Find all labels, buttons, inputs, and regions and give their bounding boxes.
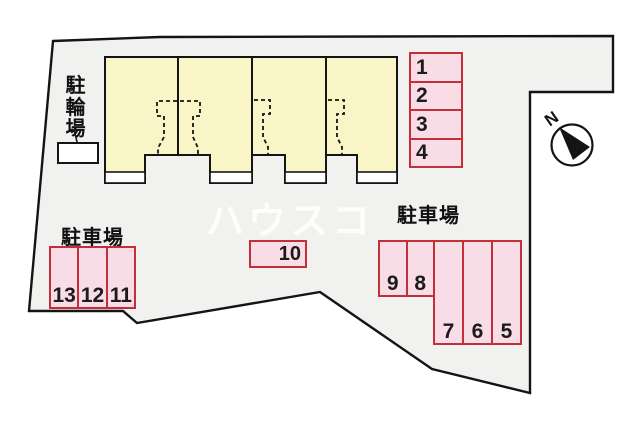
porch-unit3 (285, 172, 326, 183)
parking-group-south-tall: 7 6 5 (433, 240, 522, 345)
parking-space-9: 9 (380, 242, 406, 295)
parking-space-7: 7 (435, 242, 462, 343)
porch-unit2 (210, 172, 252, 183)
bicycle-parking-label: 駐輪場 (63, 76, 88, 141)
compass-north-label: N (541, 108, 562, 131)
parking-group-south-short: 9 8 (378, 240, 435, 297)
parking-space-8: 8 (406, 242, 434, 295)
porch-unit4 (357, 172, 397, 183)
parking-space-10: 10 (251, 242, 305, 266)
porch-unit1 (105, 172, 145, 183)
parking-group-southwest: 13 12 11 (49, 246, 136, 309)
parking-space-4: 4 (411, 138, 461, 167)
compass-needle (559, 127, 590, 160)
parking-lot-label-east: 駐車場 (397, 199, 460, 228)
parking-space-1: 1 (411, 54, 461, 81)
parking-space-11: 11 (106, 248, 134, 307)
parking-group-east: 1 2 3 4 (409, 52, 463, 168)
parking-group-center: 10 (249, 240, 307, 268)
bicycle-parking-box (58, 143, 98, 163)
site-plan: N ハウスコ 駐輪場 駐車場 駐車場 1 2 3 4 13 12 11 10 9… (0, 0, 640, 426)
parking-space-6: 6 (462, 242, 491, 343)
parking-space-5: 5 (491, 242, 520, 343)
parking-space-13: 13 (51, 248, 77, 307)
parking-space-3: 3 (411, 109, 461, 138)
parking-space-12: 12 (77, 248, 105, 307)
parking-space-2: 2 (411, 81, 461, 110)
watermark-text: ハウスコ (206, 190, 374, 245)
compass: N (541, 108, 592, 166)
